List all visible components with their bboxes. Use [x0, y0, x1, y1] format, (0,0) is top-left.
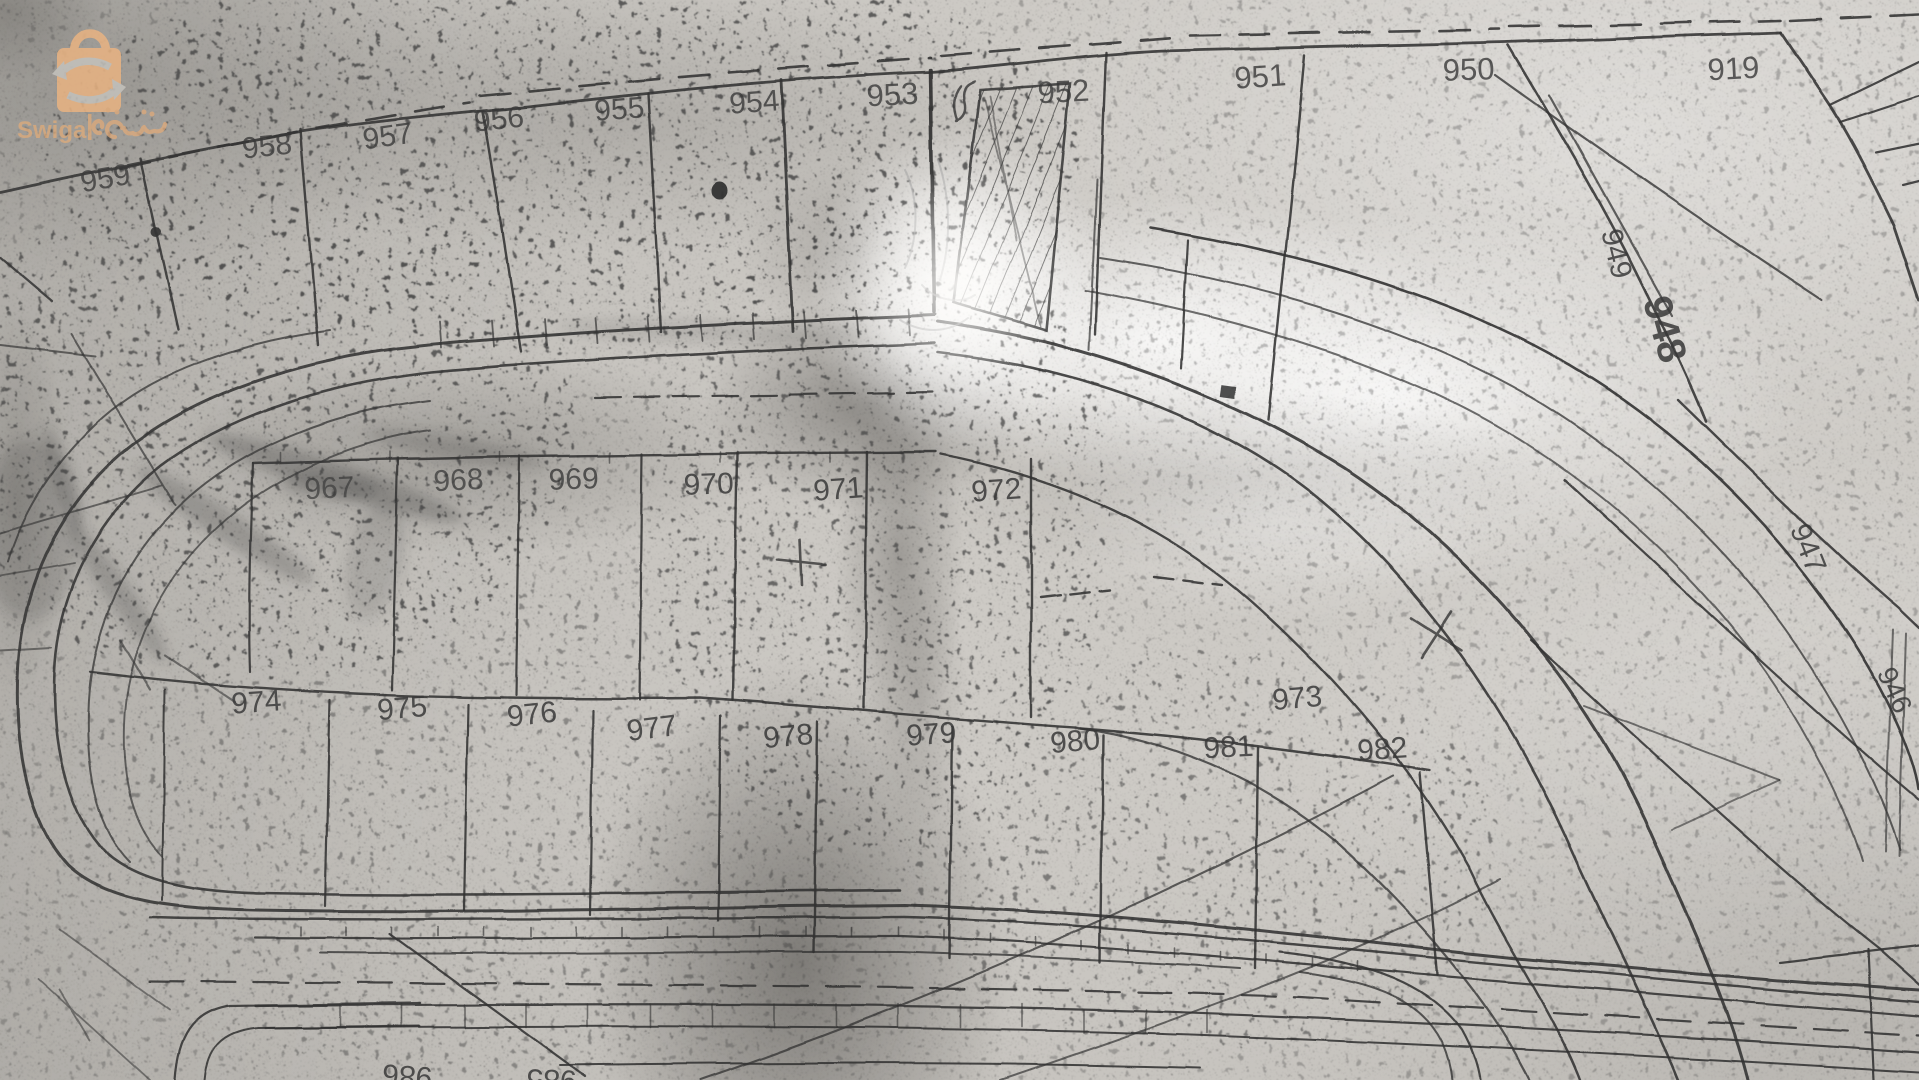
svg-text:Swiga: Swiga: [17, 117, 87, 144]
